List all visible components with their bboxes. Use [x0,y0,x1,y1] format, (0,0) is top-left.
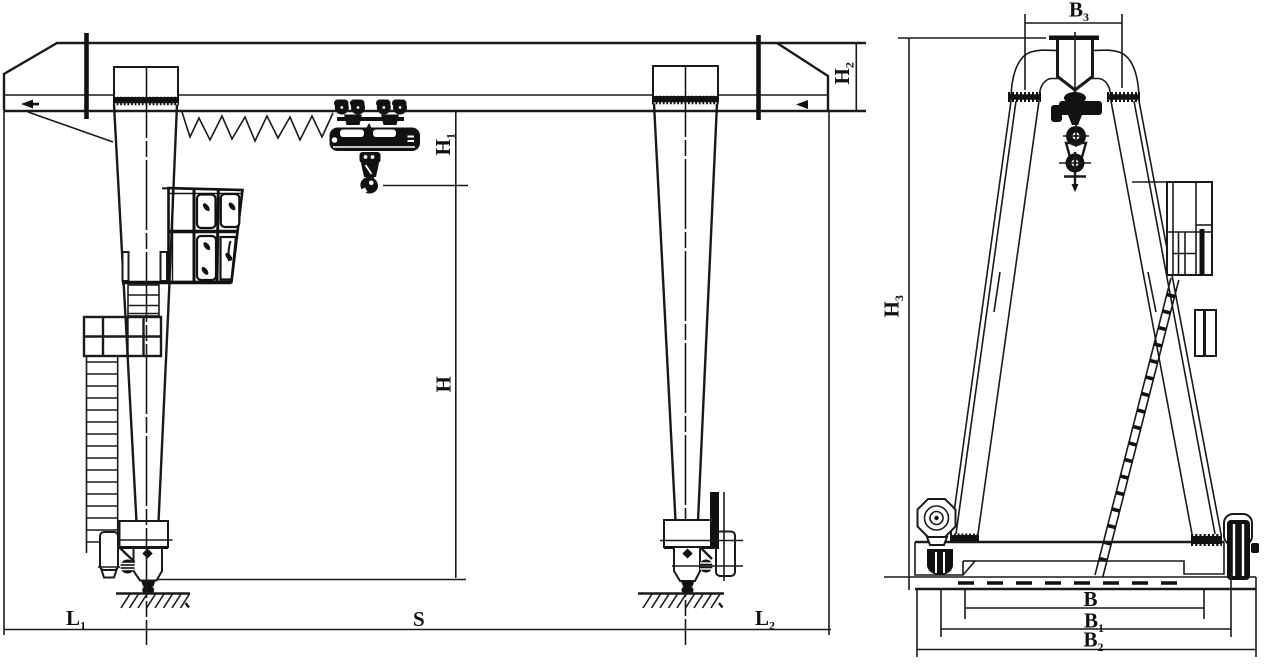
svg-text:B: B [1084,587,1098,611]
svg-text:H: H [432,376,456,392]
svg-text:S: S [413,607,425,631]
